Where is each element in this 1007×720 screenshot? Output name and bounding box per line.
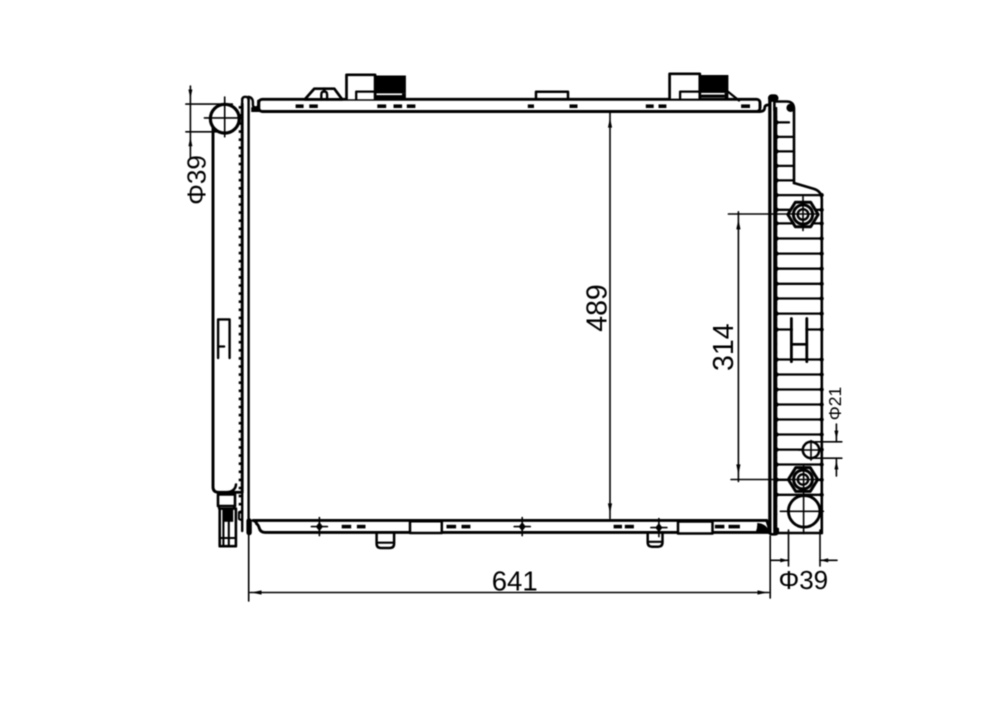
svg-text:641: 641 xyxy=(492,566,538,597)
svg-text:Φ39: Φ39 xyxy=(181,155,211,205)
svg-text:489: 489 xyxy=(582,284,614,332)
svg-text:314: 314 xyxy=(708,323,740,371)
svg-text:Φ39: Φ39 xyxy=(778,565,828,595)
svg-text:Φ21: Φ21 xyxy=(825,387,845,420)
